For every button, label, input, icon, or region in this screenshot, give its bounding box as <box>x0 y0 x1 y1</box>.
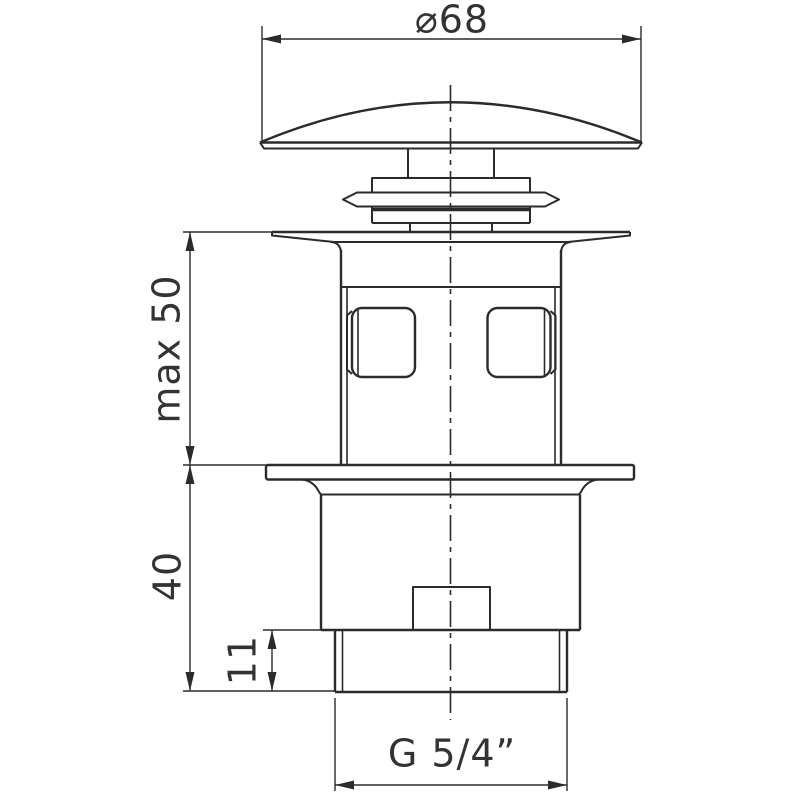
dimension-thread-size-label: G 5/4” <box>388 731 516 775</box>
arrowhead-up <box>186 232 195 251</box>
notch <box>413 587 490 630</box>
arrowhead-down <box>186 672 195 691</box>
dimension-thread-length: 11 <box>220 630 335 691</box>
dimension-thread-length-label: 11 <box>220 635 264 685</box>
arrowhead-down <box>186 446 195 465</box>
dimension-max-height: max 50 <box>144 232 272 465</box>
arrowhead-right <box>622 35 641 44</box>
arrowhead-left <box>335 781 354 790</box>
overflow-window-left <box>347 308 415 377</box>
technical-drawing: ⌀68 <box>0 0 800 800</box>
dimension-diameter: ⌀68 <box>262 0 641 141</box>
drawing-page: ⌀68 <box>0 0 800 800</box>
arrowhead-left <box>262 35 281 44</box>
dimension-diameter-label: ⌀68 <box>415 0 489 41</box>
arrowhead-up <box>186 465 195 484</box>
arrowhead-up <box>268 630 277 649</box>
arrowhead-right <box>548 781 567 790</box>
dimension-lower-height-label: 40 <box>145 551 189 601</box>
overflow-window-right <box>488 308 556 377</box>
arrowhead-down <box>268 672 277 691</box>
dimension-max-height-label: max 50 <box>144 274 188 423</box>
